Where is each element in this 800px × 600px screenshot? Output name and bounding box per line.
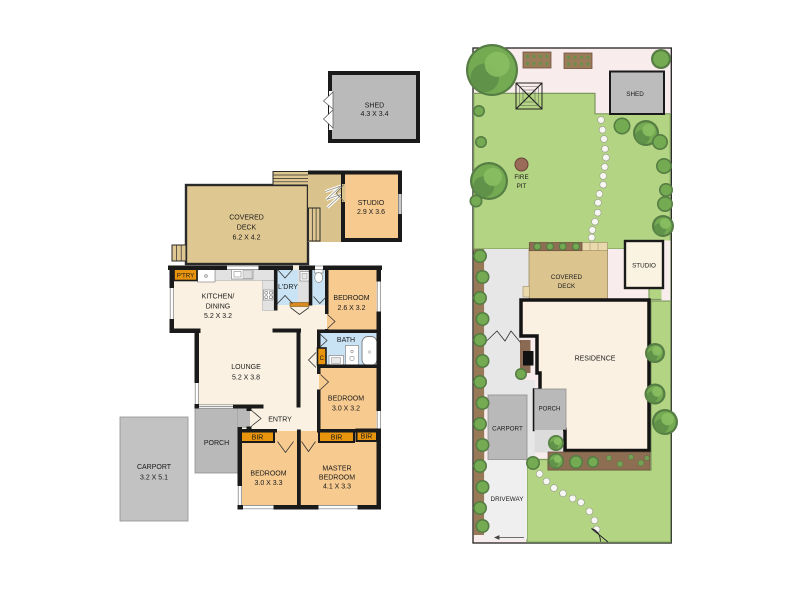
- svg-text:BIR: BIR: [331, 434, 343, 441]
- svg-text:P'TRY: P'TRY: [177, 273, 195, 280]
- svg-text:L'DRY: L'DRY: [278, 284, 298, 291]
- svg-text:2.6 X 3.2: 2.6 X 3.2: [337, 305, 365, 312]
- svg-text:KITCHEN/: KITCHEN/: [202, 294, 235, 301]
- svg-text:ENTRY: ENTRY: [268, 417, 292, 424]
- svg-text:BEDROOM: BEDROOM: [333, 295, 369, 302]
- svg-text:C: C: [320, 356, 325, 362]
- svg-text:MASTER: MASTER: [322, 466, 351, 473]
- svg-text:FIRE: FIRE: [514, 174, 528, 181]
- svg-text:6.2 X 4.2: 6.2 X 4.2: [232, 235, 260, 242]
- svg-text:3.0 X 3.3: 3.0 X 3.3: [254, 480, 282, 487]
- svg-text:PIT: PIT: [517, 183, 527, 190]
- svg-text:BEDROOM: BEDROOM: [319, 475, 355, 482]
- svg-text:CARPORT: CARPORT: [137, 464, 172, 471]
- svg-text:5.2 X 3.2: 5.2 X 3.2: [204, 313, 232, 320]
- svg-text:4.1 X 3.3: 4.1 X 3.3: [323, 484, 351, 491]
- svg-text:SHED: SHED: [365, 103, 384, 110]
- svg-text:STUDIO: STUDIO: [632, 263, 656, 270]
- svg-text:4.3 X 3.4: 4.3 X 3.4: [360, 111, 388, 118]
- svg-text:BEDROOM: BEDROOM: [250, 471, 286, 478]
- svg-text:5.2 X 3.8: 5.2 X 3.8: [232, 375, 260, 382]
- svg-text:SHED: SHED: [626, 91, 644, 98]
- svg-text:BIR: BIR: [361, 433, 373, 440]
- svg-text:COVERED: COVERED: [229, 215, 264, 222]
- svg-text:STUDIO: STUDIO: [358, 200, 385, 207]
- svg-text:PORCH: PORCH: [539, 407, 561, 413]
- svg-text:BATH: BATH: [337, 337, 355, 344]
- svg-text:PORCH: PORCH: [204, 440, 229, 447]
- svg-text:DINING: DINING: [206, 304, 231, 311]
- svg-text:RESIDENCE: RESIDENCE: [575, 356, 616, 363]
- svg-text:3.2 X 5.1: 3.2 X 5.1: [140, 475, 168, 482]
- svg-text:COVERED: COVERED: [551, 274, 583, 281]
- svg-text:DECK: DECK: [237, 225, 257, 232]
- svg-text:DECK: DECK: [558, 283, 576, 290]
- svg-text:CARPORT: CARPORT: [492, 426, 523, 433]
- svg-text:BEDROOM: BEDROOM: [328, 396, 364, 403]
- svg-text:3.0 X 3.2: 3.0 X 3.2: [332, 406, 360, 413]
- svg-text:LOUNGE: LOUNGE: [231, 364, 261, 371]
- svg-text:BIR: BIR: [252, 434, 264, 441]
- svg-text:2.9 X 3.6: 2.9 X 3.6: [357, 209, 385, 216]
- svg-text:DRIVEWAY: DRIVEWAY: [491, 496, 525, 503]
